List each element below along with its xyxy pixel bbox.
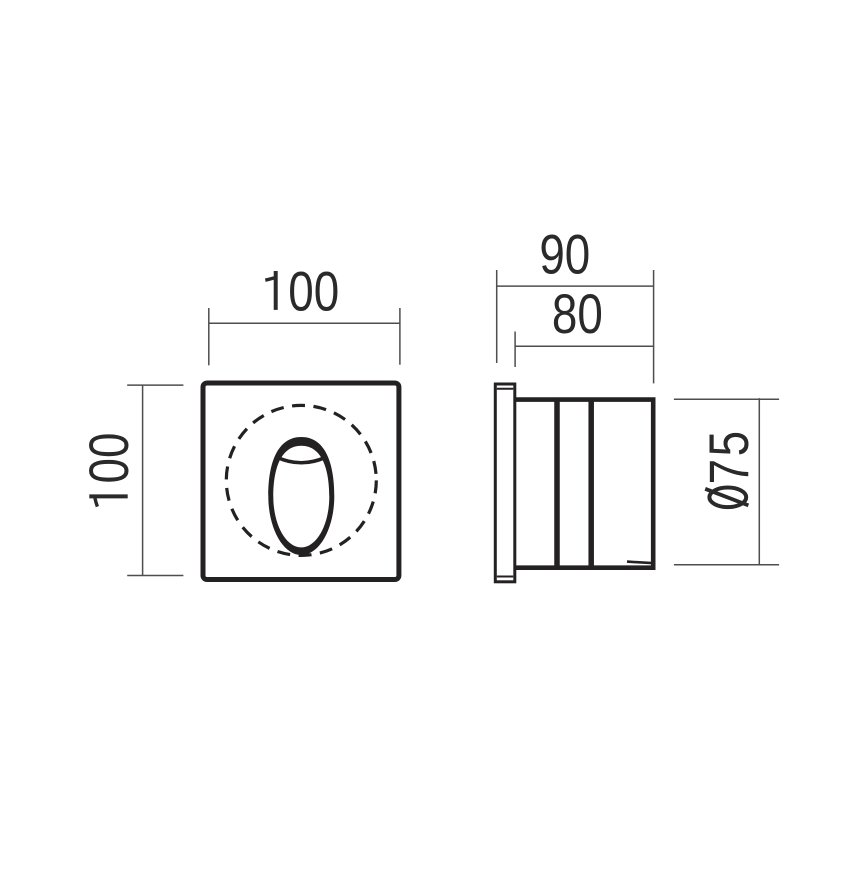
svg-text:80: 80 (552, 283, 603, 345)
svg-text:90: 90 (539, 224, 590, 286)
svg-text:75: 75 (698, 428, 760, 484)
